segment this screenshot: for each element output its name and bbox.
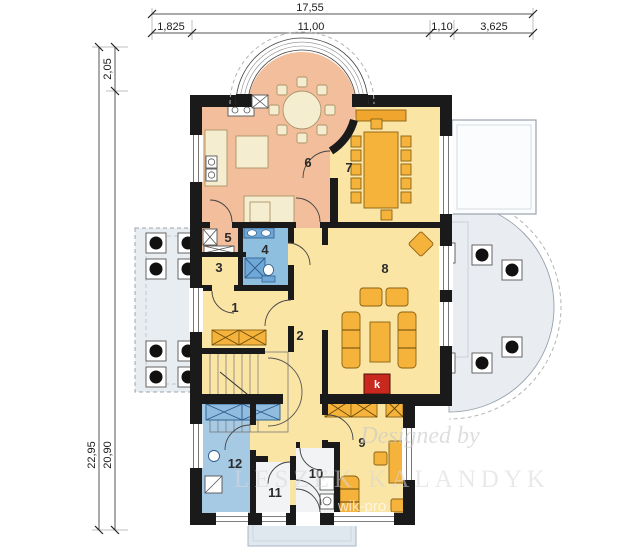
- room-label-8: 8: [381, 261, 388, 276]
- sofa: [342, 312, 360, 368]
- watermark-script: Designed by: [359, 423, 480, 449]
- window: [439, 246, 453, 290]
- fireplace-label: k: [374, 379, 381, 391]
- kitchen-counter: [205, 130, 227, 186]
- window: [189, 424, 203, 468]
- room-label-1: 1: [231, 300, 238, 315]
- room-label-2: 2: [296, 328, 303, 343]
- basin: [209, 451, 220, 462]
- room-label-5: 5: [224, 230, 231, 245]
- kitchen-island: [236, 136, 268, 168]
- dim-seg-4: 3,625: [480, 21, 508, 33]
- floor-plan-page: 17,55 1,825 11,00 1,10 3,625 2,05 22,95 …: [0, 0, 638, 556]
- window: [262, 512, 286, 526]
- coffee-table: [370, 322, 390, 362]
- right-terrace: [435, 195, 561, 419]
- entry-door-opening: [296, 512, 320, 526]
- dimension-top: 17,55 1,825 11,00 1,10 3,625: [148, 2, 537, 40]
- window: [189, 135, 203, 182]
- room-label-3: 3: [215, 260, 222, 275]
- desk-chair: [374, 452, 387, 465]
- dim-seg-1: 1,825: [157, 21, 185, 33]
- room-label-4: 4: [261, 242, 269, 257]
- sink: [262, 230, 271, 236]
- dim-inner-height: 20,90: [102, 441, 114, 469]
- sofa: [398, 312, 416, 368]
- room-label-6: 6: [304, 155, 311, 170]
- watermark-name: LESZEK KALANDYK: [234, 466, 550, 493]
- watermark-fragment: wik-pro: [337, 498, 386, 515]
- dim-upper-height: 2,05: [102, 58, 114, 79]
- armchair: [360, 288, 382, 306]
- toilet: [264, 265, 274, 276]
- round-table: [269, 77, 335, 143]
- fireplace: k: [364, 374, 390, 394]
- sink: [248, 230, 257, 236]
- hall-wardrobe: [212, 330, 266, 345]
- room-label-7: 7: [345, 160, 352, 175]
- armchair: [386, 288, 408, 306]
- dimension-left: 2,05 22,95 20,90: [86, 43, 128, 534]
- floor-plan-drawing: 17,55 1,825 11,00 1,10 3,625 2,05 22,95 …: [0, 0, 638, 556]
- dim-outer-height: 22,95: [86, 441, 98, 469]
- window: [189, 288, 203, 332]
- dim-seg-2: 11,00: [298, 21, 325, 33]
- dim-total-width: 17,55: [296, 2, 324, 14]
- window: [439, 136, 453, 214]
- dim-seg-3: 1,10: [431, 21, 452, 33]
- kitchen-cabinet: [244, 196, 294, 226]
- window: [216, 512, 248, 526]
- left-porch: [135, 228, 198, 392]
- window: [439, 302, 453, 346]
- side-balcony: [452, 120, 536, 214]
- chimney: [252, 95, 268, 108]
